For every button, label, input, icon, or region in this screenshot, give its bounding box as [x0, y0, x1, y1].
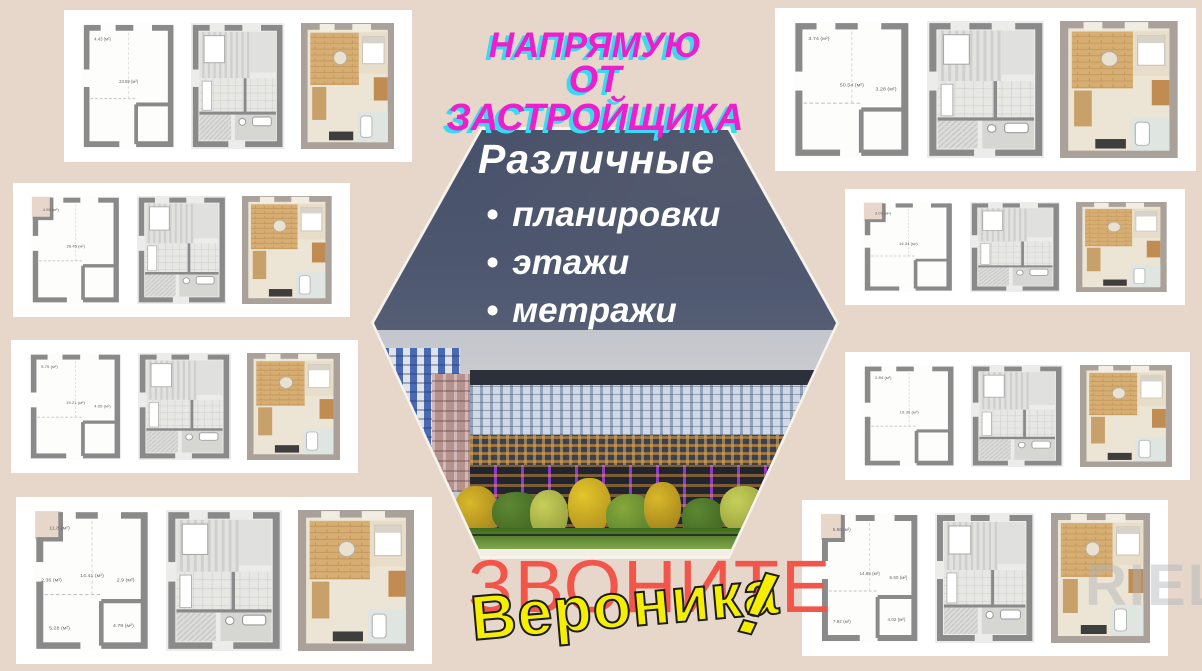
svg-text:5.50 (м²): 5.50 (м²) [890, 575, 908, 580]
floor-plan-outline: 23.59 (м²)4.43 (м²) [82, 23, 175, 149]
floor-plan-outline: 14.85 (м²)5.56 (м²)5.50 (м²)4.02 (м²)7.9… [820, 513, 919, 643]
floor-plan-technical [138, 353, 231, 460]
floor-plan-render [247, 353, 340, 460]
svg-text:16.34 (м²): 16.34 (м²) [899, 242, 918, 245]
svg-text:4.09 (м²): 4.09 (м²) [94, 404, 111, 409]
hexagon-bullet-list: •планировки•этажи•метражи [478, 191, 808, 335]
svg-text:4.43 (м²): 4.43 (м²) [94, 36, 111, 41]
floor-plan-outline: 28.45 (м²)4.95 (м²) [31, 196, 121, 304]
floor-plan-card-right-lower: 19.30 (м²)2.84 (м²) [845, 352, 1190, 480]
floor-plan-technical [935, 513, 1034, 643]
floor-plan-outline: 14.41 (м²)11.8 (м²)2.9 (м²)4.79 (м²)5.28… [34, 510, 150, 651]
svg-text:3.74 (м²): 3.74 (м²) [808, 36, 829, 42]
floor-plan-render [301, 23, 394, 149]
floor-plan-render [1060, 21, 1178, 158]
hexagon-bullet-label: планировки [512, 191, 720, 239]
svg-text:2.9 (м²): 2.9 (м²) [117, 578, 135, 584]
floor-plan-outline: 19.30 (м²)2.84 (м²) [863, 365, 955, 467]
svg-text:3.09 (м²): 3.09 (м²) [875, 212, 891, 215]
svg-text:19.21 (м²): 19.21 (м²) [66, 400, 86, 405]
tree-icon [758, 484, 794, 538]
hexagon-bullet-item: •планировки [478, 191, 808, 239]
svg-text:5.56 (м²): 5.56 (м²) [833, 527, 851, 532]
building-upper-floors [470, 385, 836, 435]
svg-text:19.30 (м²): 19.30 (м²) [900, 410, 920, 415]
bullet-dot-icon: • [486, 287, 498, 335]
floor-plan-card-top-right: 50.54 (м²)3.74 (м²)3.28 (м²) [775, 8, 1196, 171]
svg-text:23.59 (м²): 23.59 (м²) [119, 79, 139, 84]
hexagon-bullet-item: •метражи [478, 287, 808, 335]
svg-text:7.92 (м²): 7.92 (м²) [833, 619, 851, 624]
headline-line2: ОТ ЗАСТРОЙЩИКА [415, 61, 775, 137]
hexagon-bullet-label: метражи [512, 287, 676, 335]
svg-text:11.8 (м²): 11.8 (м²) [49, 526, 70, 532]
floor-plan-technical [166, 510, 282, 651]
svg-text:4.79 (м²): 4.79 (м²) [113, 623, 134, 629]
floor-plan-render [298, 510, 414, 651]
svg-text:14.41 (м²): 14.41 (м²) [80, 573, 104, 579]
hexagon-bullet-label: этажи [512, 239, 629, 287]
bullet-dot-icon: • [486, 191, 498, 239]
floor-plan-card-left-upper: 28.45 (м²)4.95 (м²) [13, 183, 350, 317]
floor-plan-outline: 50.54 (м²)3.74 (м²)3.28 (м²) [793, 21, 911, 158]
headline-line1: НАПРЯМУЮ [415, 28, 775, 63]
building-roof [470, 370, 836, 385]
hexagon-title: Различные [478, 136, 808, 183]
svg-text:5.75 (м²): 5.75 (м²) [41, 364, 58, 369]
floor-plan-outline: 19.21 (м²)5.75 (м²)4.09 (м²) [29, 353, 122, 460]
tree-icon [568, 478, 611, 533]
watermark-text: RIEL [1085, 552, 1202, 619]
hexagon-text-block: Различные •планировки•этажи•метражи [478, 136, 808, 335]
floor-plan-technical [191, 23, 284, 149]
floor-plan-render [242, 196, 332, 304]
svg-text:5.28 (м²): 5.28 (м²) [49, 625, 70, 631]
floor-plan-render [1076, 202, 1167, 292]
fence-line [374, 534, 836, 536]
floor-plan-technical [137, 196, 227, 304]
svg-text:14.85 (м²): 14.85 (м²) [859, 571, 880, 576]
floor-plan-card-left-lower: 19.21 (м²)5.75 (м²)4.09 (м²) [11, 340, 358, 473]
hexagon-bullet-item: •этажи [478, 239, 808, 287]
headline: НАПРЯМУЮ ОТ ЗАСТРОЙЩИКА [415, 28, 775, 137]
floor-plan-card-right-upper: 16.34 (м²)3.09 (м²) [845, 189, 1185, 305]
floor-plan-outline: 16.34 (м²)3.09 (м²) [863, 202, 954, 292]
svg-text:4.02 (м²): 4.02 (м²) [888, 617, 906, 622]
floor-plan-render [1080, 365, 1172, 467]
floor-plan-technical [927, 21, 1045, 158]
floor-plan-technical [970, 202, 1061, 292]
svg-text:28.45 (м²): 28.45 (м²) [67, 244, 86, 249]
bullet-dot-icon: • [486, 239, 498, 287]
svg-text:4.95 (м²): 4.95 (м²) [43, 207, 60, 212]
svg-text:2.84 (м²): 2.84 (м²) [875, 375, 892, 380]
floor-plan-card-bottom-left: 14.41 (м²)11.8 (м²)2.9 (м²)4.79 (м²)5.28… [16, 497, 432, 664]
floor-plan-technical [971, 365, 1063, 467]
tree-icon [644, 482, 681, 533]
svg-text:50.54 (м²): 50.54 (м²) [840, 83, 864, 89]
floor-plan-card-top-left: 23.59 (м²)4.43 (м²) [64, 10, 412, 162]
ad-canvas: 23.59 (м²)4.43 (м²) [0, 0, 1202, 671]
svg-text:3.28 (м²): 3.28 (м²) [875, 87, 896, 93]
svg-text:2.36 (м²): 2.36 (м²) [41, 578, 62, 584]
